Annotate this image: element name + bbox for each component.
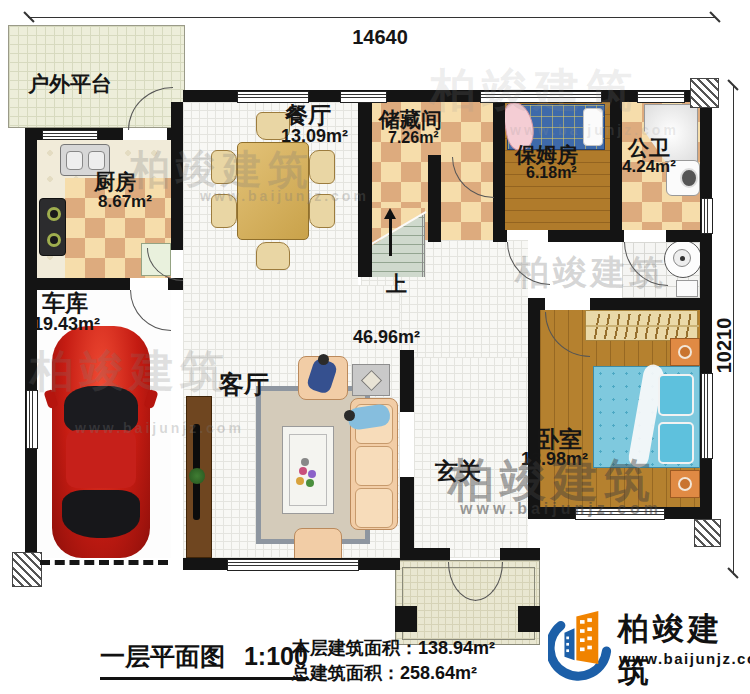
coffee-table xyxy=(282,426,334,514)
car xyxy=(52,326,150,558)
dimension-line-top xyxy=(28,17,716,18)
bed-pillow xyxy=(658,374,694,416)
dining-chair xyxy=(309,150,335,184)
dimension-right-label: 10210 xyxy=(713,306,736,386)
sink-bowl-left xyxy=(66,151,83,170)
total-area-value: 258.64m² xyxy=(400,663,477,683)
room-area-dining: 13.09m² xyxy=(281,126,348,147)
wall xyxy=(358,102,372,277)
wall xyxy=(500,548,540,560)
laundry-box xyxy=(676,280,698,297)
porch-column xyxy=(518,606,540,632)
wall xyxy=(400,477,414,560)
floor-area-value: 138.94m² xyxy=(418,638,495,658)
wall xyxy=(428,155,441,242)
floor-plan: 14640 10210 户外平台 厨房 8.67m² 餐厅 13.09m² 储藏… xyxy=(0,0,750,694)
car-windshield xyxy=(64,386,138,434)
burner-top xyxy=(47,207,61,221)
porch-column xyxy=(395,606,417,632)
dining-chair xyxy=(211,194,237,228)
wall xyxy=(590,298,712,310)
washbasin xyxy=(664,240,702,278)
nightstand xyxy=(670,338,700,366)
total-area-row: 总建筑面积：258.64m² xyxy=(292,661,477,685)
brand-website: www.baijunjz.com xyxy=(619,650,750,667)
floor-area-row: 本层建筑面积：138.94m² xyxy=(292,636,495,660)
stairs-up-label: 上 xyxy=(386,270,407,298)
brand-logo-icon xyxy=(548,602,612,682)
wall xyxy=(610,230,624,242)
brand-logo: 柏竣建筑 www.baijunjz.com xyxy=(548,600,748,690)
total-area-label: 总建筑面积： xyxy=(292,663,400,683)
table-lamp xyxy=(361,370,382,391)
person-lying-head xyxy=(344,410,355,421)
plan-title: 一层平面图 xyxy=(100,642,225,670)
plant xyxy=(189,468,205,484)
wall xyxy=(25,128,37,578)
washbasin-drain xyxy=(680,256,685,261)
window xyxy=(480,91,602,103)
corner-table xyxy=(352,364,390,396)
window xyxy=(701,198,713,234)
window xyxy=(701,373,713,459)
dining-chair xyxy=(309,194,335,228)
stairs-up-arrowhead-icon xyxy=(384,208,396,219)
wall xyxy=(610,102,622,242)
window xyxy=(42,130,98,140)
window xyxy=(340,91,387,103)
room-area-bedroom: 13.98m² xyxy=(521,449,588,470)
wardrobe xyxy=(585,310,698,341)
wall xyxy=(493,230,507,242)
wall-hatch xyxy=(694,519,721,547)
room-label-foyer: 玄关 xyxy=(435,456,481,487)
nanny-bed-pillow xyxy=(583,108,603,146)
nightstand xyxy=(670,470,700,498)
stove xyxy=(39,198,66,256)
room-area-storage: 7.26m² xyxy=(388,129,439,147)
wall xyxy=(528,298,545,310)
wardrobe-rod xyxy=(586,325,699,327)
car-roof xyxy=(66,430,136,488)
bed-pillow xyxy=(658,422,694,464)
window xyxy=(227,559,359,571)
burner-bottom xyxy=(47,233,61,247)
room-area-living: 46.96m² xyxy=(353,327,420,348)
wall xyxy=(528,310,540,519)
dining-table xyxy=(237,142,309,240)
dining-chair xyxy=(211,150,237,184)
toilet-bowl xyxy=(680,168,698,188)
window xyxy=(575,508,665,520)
wall xyxy=(493,102,505,242)
dining-chair xyxy=(256,242,290,270)
person-sitting-head xyxy=(318,354,329,365)
wall xyxy=(548,230,610,242)
garage-door-dashed xyxy=(40,560,168,565)
window xyxy=(637,91,685,103)
floor-area-label: 本层建筑面积： xyxy=(292,638,418,658)
stairs-up-arrow-icon xyxy=(389,218,392,256)
room-label-platform: 户外平台 xyxy=(28,70,112,98)
dimension-top-label: 14640 xyxy=(330,26,430,49)
window xyxy=(26,390,38,449)
room-label-living: 客厅 xyxy=(219,368,269,401)
wall-hatch xyxy=(690,78,719,108)
room-area-bath: 4.24m² xyxy=(622,157,676,177)
wall-hatch xyxy=(12,552,42,587)
coffee-table-inner xyxy=(289,434,327,506)
plan-title-block: 一层平面图 1:100 xyxy=(100,640,308,680)
wall xyxy=(400,350,414,412)
car-rear-window xyxy=(62,490,140,538)
flower-decor xyxy=(299,467,307,475)
room-area-kitchen: 8.67m² xyxy=(98,192,152,212)
room-area-nanny: 6.18m² xyxy=(526,164,577,182)
room-area-garage: 19.43m² xyxy=(33,314,100,335)
